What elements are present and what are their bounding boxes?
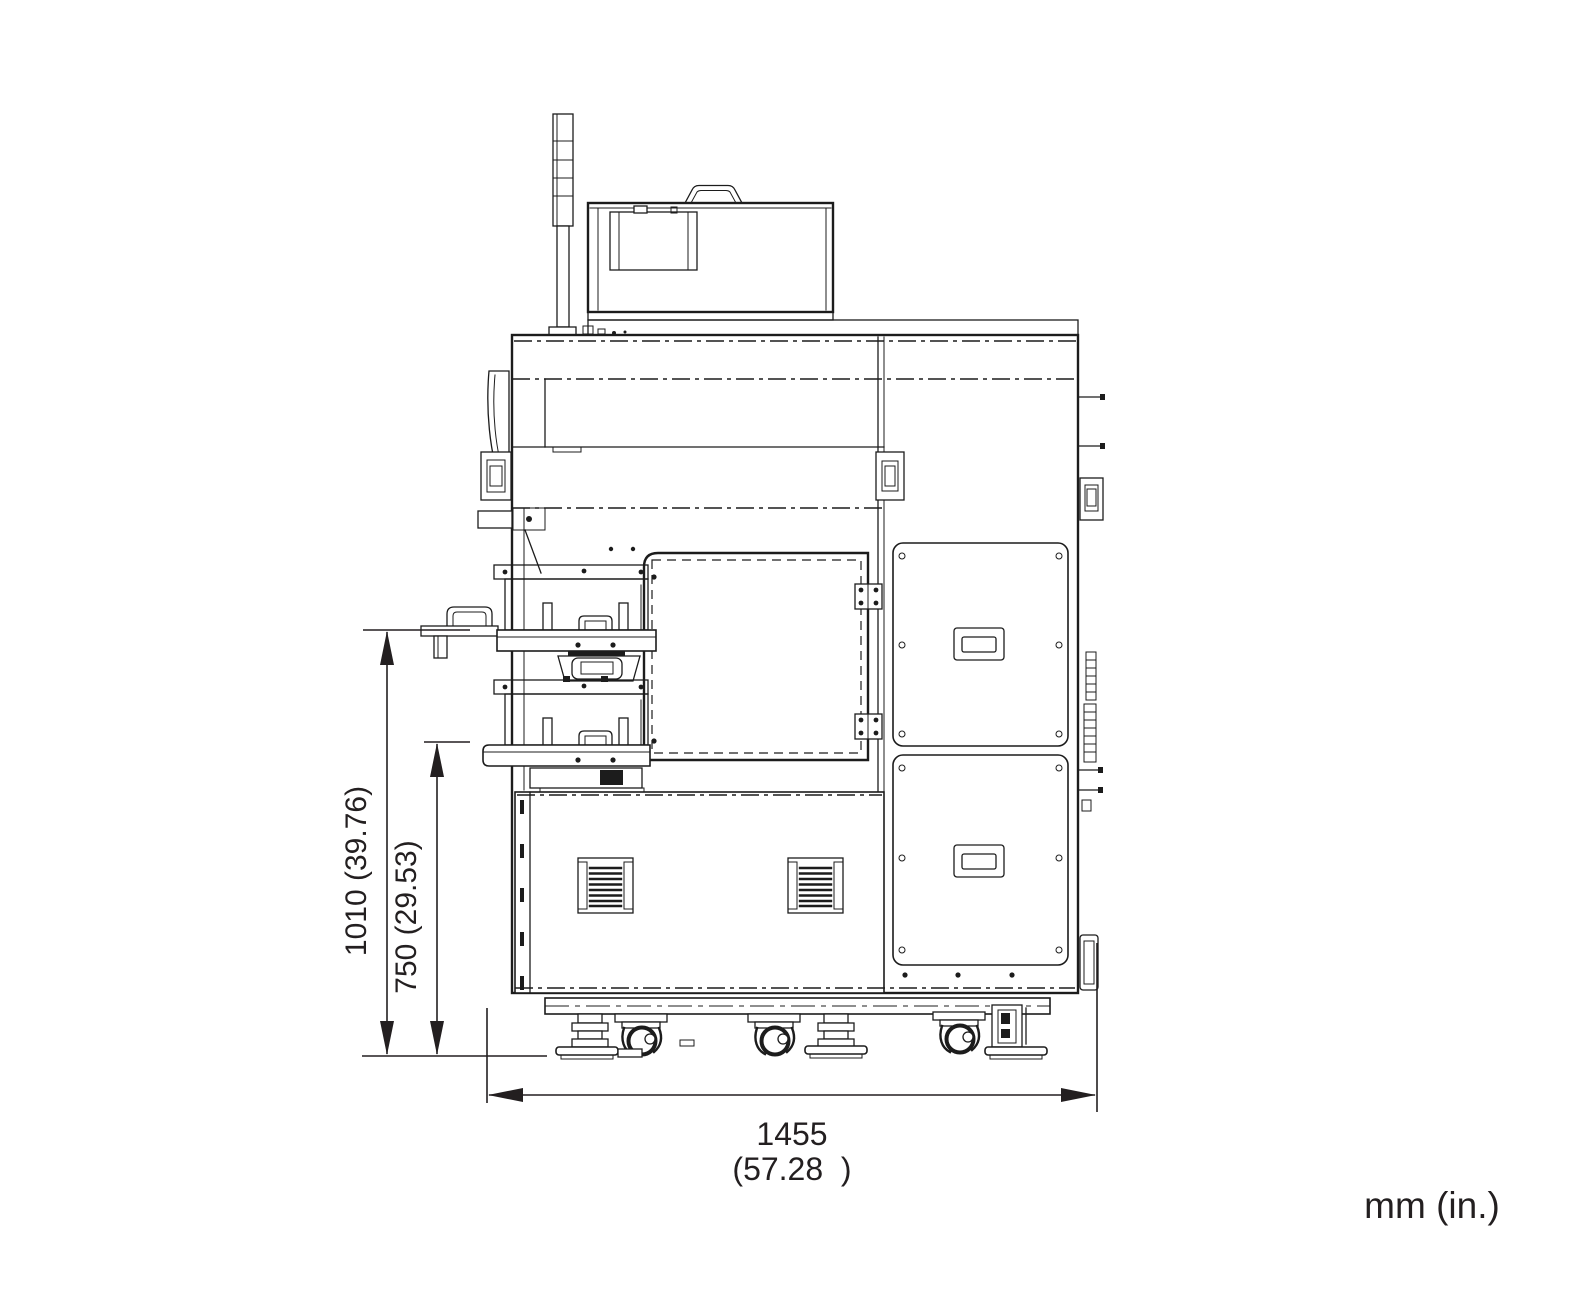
top-platform bbox=[583, 320, 1078, 335]
left-tab bbox=[478, 511, 512, 528]
leveling-foot-left bbox=[556, 1014, 618, 1059]
caster-left bbox=[615, 1014, 667, 1057]
machine-front-view-drawing: 1010 (39.76) 750 (29.53) 1455 (57.28 ) m… bbox=[0, 0, 1576, 1301]
tray-slide-upper bbox=[497, 630, 656, 651]
left-arm bbox=[421, 607, 498, 658]
right-upper-panel bbox=[893, 543, 1068, 746]
left-latch bbox=[481, 452, 511, 500]
signal-tower bbox=[549, 114, 576, 335]
right-latch bbox=[1080, 478, 1103, 520]
right-lower-panel bbox=[893, 755, 1068, 978]
arrowhead-up bbox=[380, 631, 394, 665]
dim-label-1010: 1010 (39.76) bbox=[340, 786, 373, 956]
dim-label-1455-in: (57.28 ) bbox=[732, 1151, 851, 1187]
dimensional-drawing-page: 1010 (39.76) 750 (29.53) 1455 (57.28 ) m… bbox=[0, 0, 1576, 1301]
tray-slide-lower bbox=[483, 745, 650, 766]
arrowhead-down bbox=[430, 1021, 444, 1055]
arrowhead-up bbox=[430, 743, 444, 777]
arrowhead-left bbox=[488, 1088, 523, 1102]
door-hinge-bottom bbox=[855, 714, 882, 739]
leveling-foot-middle bbox=[805, 1014, 867, 1058]
arrowhead-right bbox=[1061, 1088, 1096, 1102]
carry-handle bbox=[685, 186, 742, 204]
door-hinge-top bbox=[855, 584, 882, 609]
dim-label-1455-mm: 1455 bbox=[756, 1116, 827, 1152]
display-unit bbox=[588, 186, 833, 321]
dimension-height-750: 750 (29.53) bbox=[390, 742, 470, 1055]
right-edge-fittings bbox=[1078, 394, 1105, 990]
units-label: mm (in.) bbox=[1364, 1185, 1500, 1226]
dim-label-750: 750 (29.53) bbox=[390, 840, 423, 993]
left-edge-guard bbox=[481, 371, 511, 500]
signal-tower-pole bbox=[557, 226, 569, 327]
caster-right bbox=[933, 1012, 985, 1053]
divider-latch bbox=[876, 452, 904, 500]
caster-middle bbox=[680, 1014, 800, 1055]
front-door bbox=[644, 553, 882, 760]
lower-front-panel bbox=[515, 792, 884, 993]
arrowhead-down bbox=[380, 1021, 394, 1055]
